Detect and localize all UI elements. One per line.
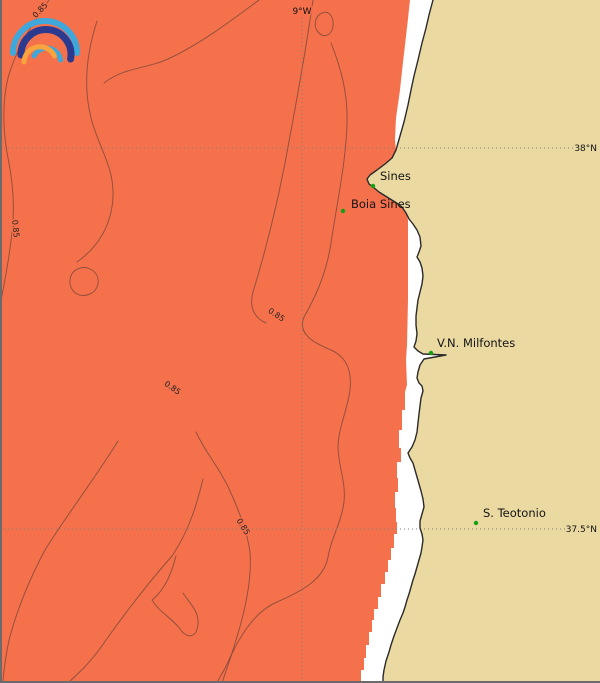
meridian-9w-label: 9°W — [292, 7, 311, 17]
parallel-37-5n-label: 37.5°N — [566, 525, 597, 535]
parallel-38n-label: 38°N — [574, 144, 597, 154]
place-marker-vn-milfontes — [429, 351, 433, 355]
map-svg: 0.85 0.85 0.85 0.85 0.85 9°W 38°N 37.5°N… — [0, 0, 600, 683]
sea-region — [0, 0, 410, 683]
place-marker-sines — [371, 184, 375, 188]
map-canvas: 0.85 0.85 0.85 0.85 0.85 9°W 38°N 37.5°N… — [0, 0, 600, 683]
place-label-sines: Sines — [380, 169, 411, 183]
place-label-boia-sines: Boia Sines — [351, 197, 411, 211]
place-label-vn-milfontes: V.N. Milfontes — [437, 336, 515, 350]
place-label-s-teotonio: S. Teotonio — [483, 506, 546, 520]
place-marker-boia-sines — [341, 209, 345, 213]
contour-label: 0.85 — [10, 219, 21, 238]
place-marker-s-teotonio — [474, 521, 478, 525]
